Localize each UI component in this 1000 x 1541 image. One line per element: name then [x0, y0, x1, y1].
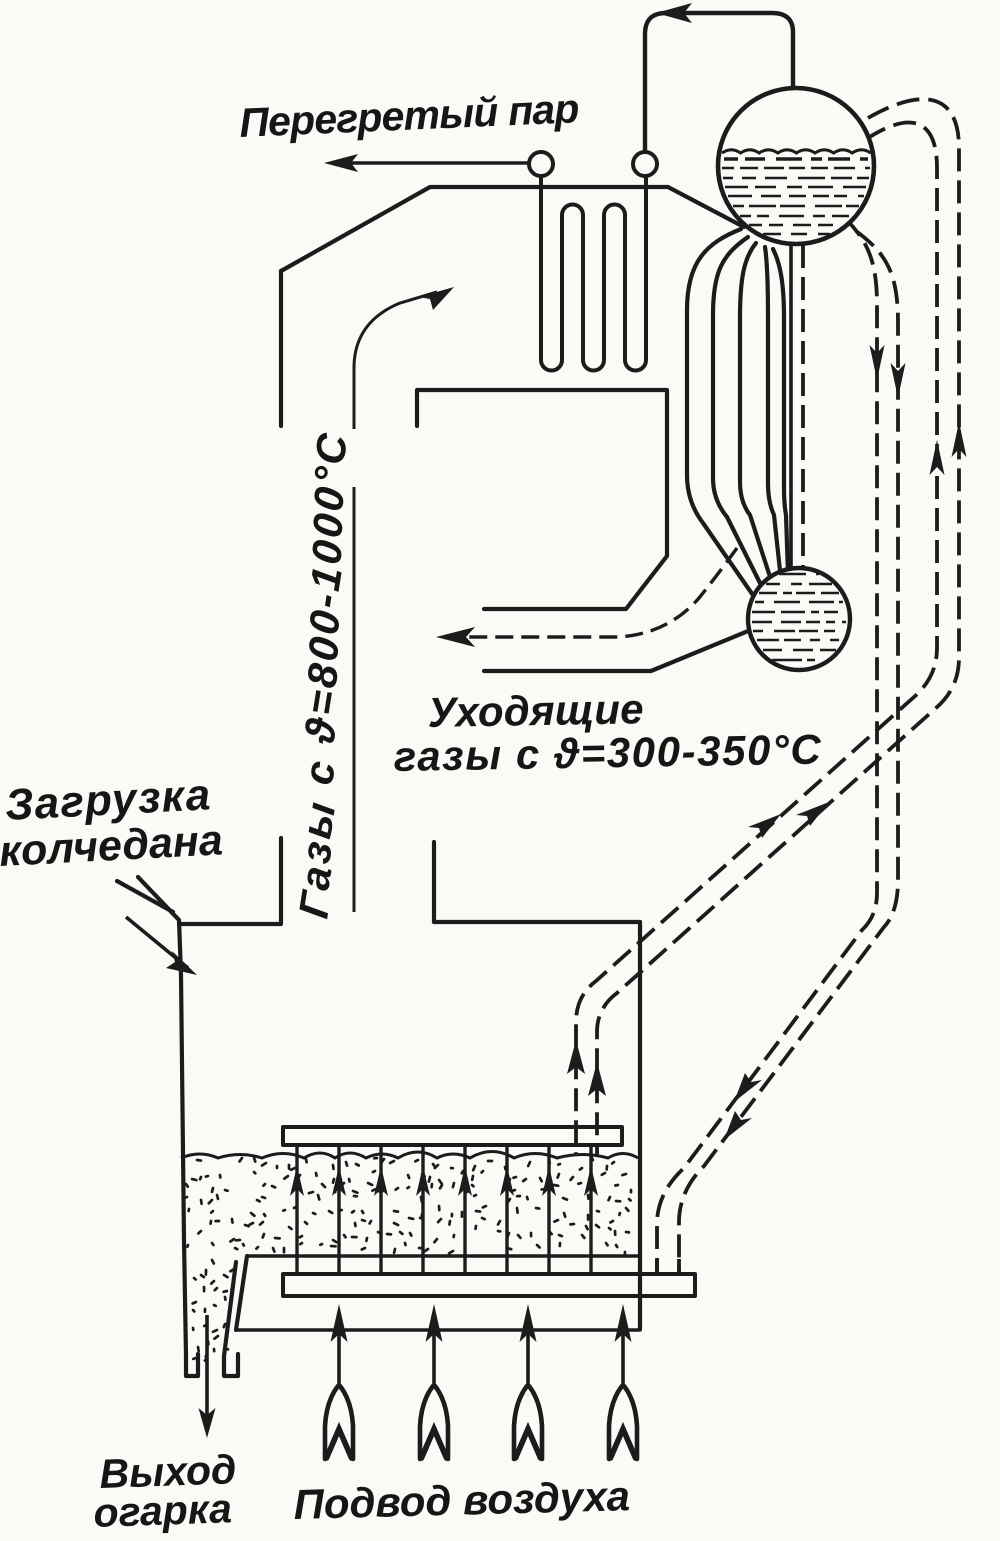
svg-text:Подвод воздуха: Подвод воздуха	[293, 1472, 630, 1528]
svg-text:газы с ϑ=300-350°С: газы с ϑ=300-350°С	[393, 726, 822, 780]
svg-text:огарка: огарка	[93, 1485, 233, 1536]
